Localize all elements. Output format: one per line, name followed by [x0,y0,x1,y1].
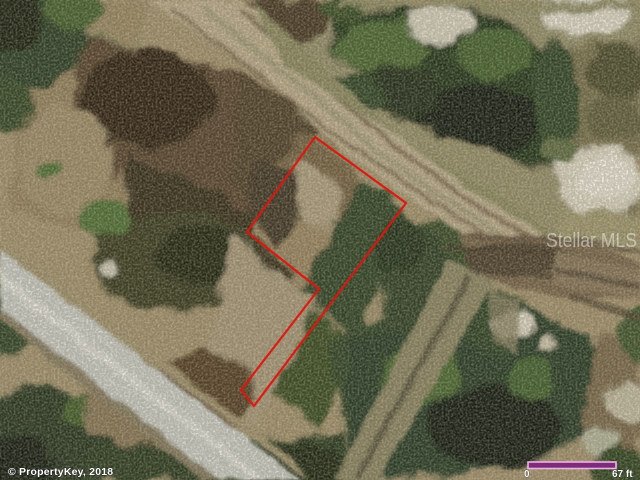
svg-text:67 ft: 67 ft [612,469,633,480]
svg-text:Stellar MLS: Stellar MLS [546,230,637,252]
svg-text:© PropertyKey, 2018: © PropertyKey, 2018 [8,466,113,478]
svg-text:0: 0 [524,469,530,480]
